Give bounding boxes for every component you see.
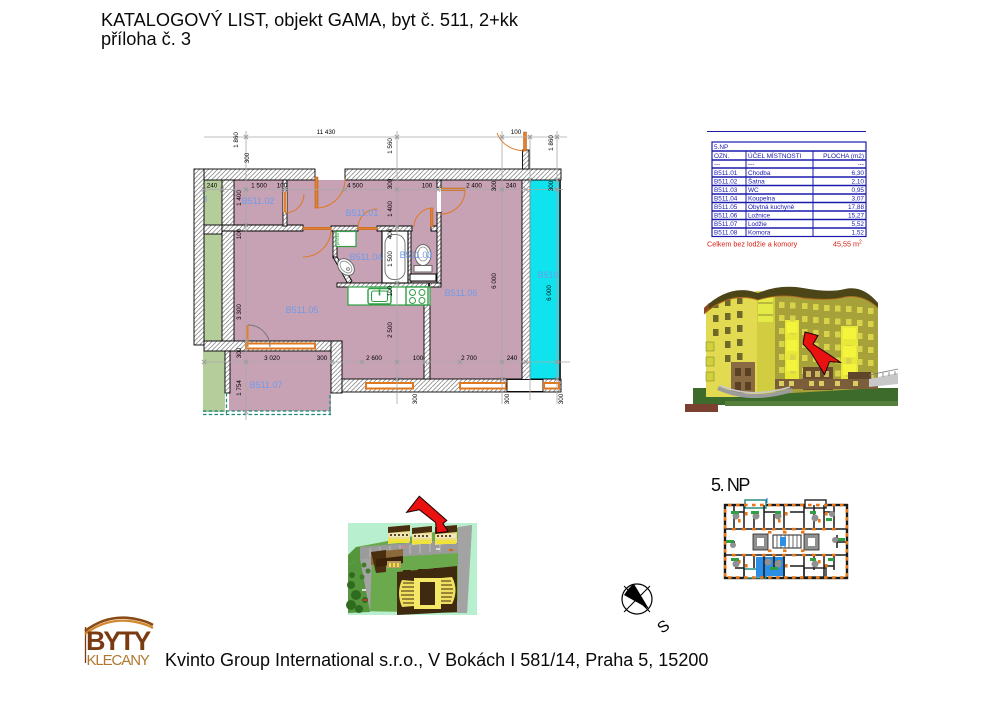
svg-text:3 300: 3 300: [236, 304, 243, 320]
svg-text:100: 100: [236, 228, 243, 239]
svg-text:3 020: 3 020: [264, 355, 280, 362]
svg-text:ÚČEL MÍSTNOSTI: ÚČEL MÍSTNOSTI: [748, 151, 802, 160]
svg-text:2,10: 2,10: [852, 179, 865, 186]
svg-text:B511.08: B511.08: [714, 230, 738, 237]
svg-text:240: 240: [506, 183, 517, 190]
svg-text:6 000: 6 000: [491, 273, 498, 289]
svg-text:---: ---: [858, 161, 864, 168]
svg-text:Koupelna: Koupelna: [748, 196, 775, 203]
svg-text:KLECANY: KLECANY: [87, 652, 150, 669]
svg-text:S: S: [655, 617, 673, 637]
svg-text:1 500: 1 500: [251, 183, 267, 190]
svg-text:---: ---: [714, 161, 720, 168]
svg-text:240: 240: [207, 183, 218, 190]
svg-text:B511.06: B511.06: [445, 288, 478, 298]
svg-text:B511.01: B511.01: [714, 170, 738, 177]
svg-text:6,30: 6,30: [852, 170, 865, 177]
svg-text:PLOCHA (m2): PLOCHA (m2): [823, 153, 864, 160]
svg-text:Chodba: Chodba: [748, 170, 771, 177]
svg-text:4 500: 4 500: [347, 183, 363, 190]
svg-text:1 860: 1 860: [233, 132, 240, 148]
svg-text:5,52: 5,52: [852, 221, 865, 228]
svg-text:0,95: 0,95: [852, 187, 865, 194]
svg-text:pračka: pračka: [335, 232, 340, 245]
svg-text:300: 300: [236, 347, 243, 358]
svg-text:2 700: 2 700: [461, 355, 477, 362]
svg-text:11 430: 11 430: [317, 129, 336, 136]
svg-text:6 000: 6 000: [546, 285, 553, 301]
svg-text:Celkem bez lodžie a komory: Celkem bez lodžie a komory: [707, 240, 798, 249]
svg-text:1 560: 1 560: [387, 138, 394, 154]
svg-text:Lodžie: Lodžie: [748, 221, 767, 228]
svg-text:Šatna: Šatna: [748, 177, 765, 186]
svg-text:2 600: 2 600: [366, 355, 382, 362]
svg-text:WC: WC: [748, 187, 759, 194]
svg-text:240: 240: [507, 355, 518, 362]
svg-text:Obytná kuchyně: Obytná kuchyně: [748, 204, 795, 211]
svg-text:2 500: 2 500: [387, 322, 394, 338]
svg-text:100: 100: [387, 285, 394, 296]
svg-text:300: 300: [491, 180, 498, 191]
svg-text:Ložnice: Ložnice: [748, 213, 770, 220]
svg-text:2: 2: [859, 240, 862, 246]
svg-text:B511.03: B511.03: [714, 187, 738, 194]
svg-text:300: 300: [387, 178, 394, 189]
svg-text:---: ---: [748, 161, 754, 168]
svg-text:300: 300: [317, 355, 328, 362]
svg-text:100: 100: [413, 355, 424, 362]
svg-text:300: 300: [244, 152, 251, 163]
svg-text:15,27: 15,27: [848, 213, 864, 220]
svg-text:400: 400: [387, 228, 394, 239]
svg-text:1 500: 1 500: [387, 251, 394, 267]
svg-text:5.NP: 5.NP: [714, 144, 728, 151]
svg-text:100: 100: [511, 129, 522, 136]
svg-text:B511.02: B511.02: [714, 179, 738, 186]
svg-text:1 860: 1 860: [548, 135, 555, 151]
svg-text:B511.06: B511.06: [714, 213, 738, 220]
svg-text:B511.05: B511.05: [714, 204, 738, 211]
svg-text:B511.04: B511.04: [714, 196, 738, 203]
svg-text:B511.02: B511.02: [242, 196, 275, 206]
svg-text:l: l: [205, 194, 207, 204]
svg-text:B510: B510: [537, 270, 558, 280]
svg-text:45,55 m: 45,55 m: [833, 240, 859, 249]
svg-text:B511.05: B511.05: [286, 305, 319, 315]
svg-text:B511.07: B511.07: [714, 221, 738, 228]
svg-text:3,07: 3,07: [852, 196, 865, 203]
svg-text:300: 300: [548, 180, 555, 191]
svg-text:300: 300: [412, 393, 419, 404]
svg-text:17,88: 17,88: [848, 204, 864, 211]
svg-text:OZN.: OZN.: [714, 153, 729, 160]
svg-text:B511.07: B511.07: [250, 380, 283, 390]
svg-text:1 400: 1 400: [387, 201, 394, 217]
svg-text:100: 100: [277, 183, 288, 190]
svg-text:B511.03: B511.03: [400, 250, 433, 260]
svg-text:1 754: 1 754: [236, 380, 243, 396]
svg-text:2 400: 2 400: [466, 183, 482, 190]
svg-text:B511.01: B511.01: [346, 208, 379, 218]
svg-text:300: 300: [504, 393, 511, 404]
svg-text:100: 100: [422, 183, 433, 190]
svg-text:1,52: 1,52: [852, 230, 865, 237]
svg-text:300: 300: [558, 393, 565, 404]
svg-text:Komora: Komora: [748, 230, 771, 237]
svg-text:B511.04: B511.04: [350, 252, 383, 262]
